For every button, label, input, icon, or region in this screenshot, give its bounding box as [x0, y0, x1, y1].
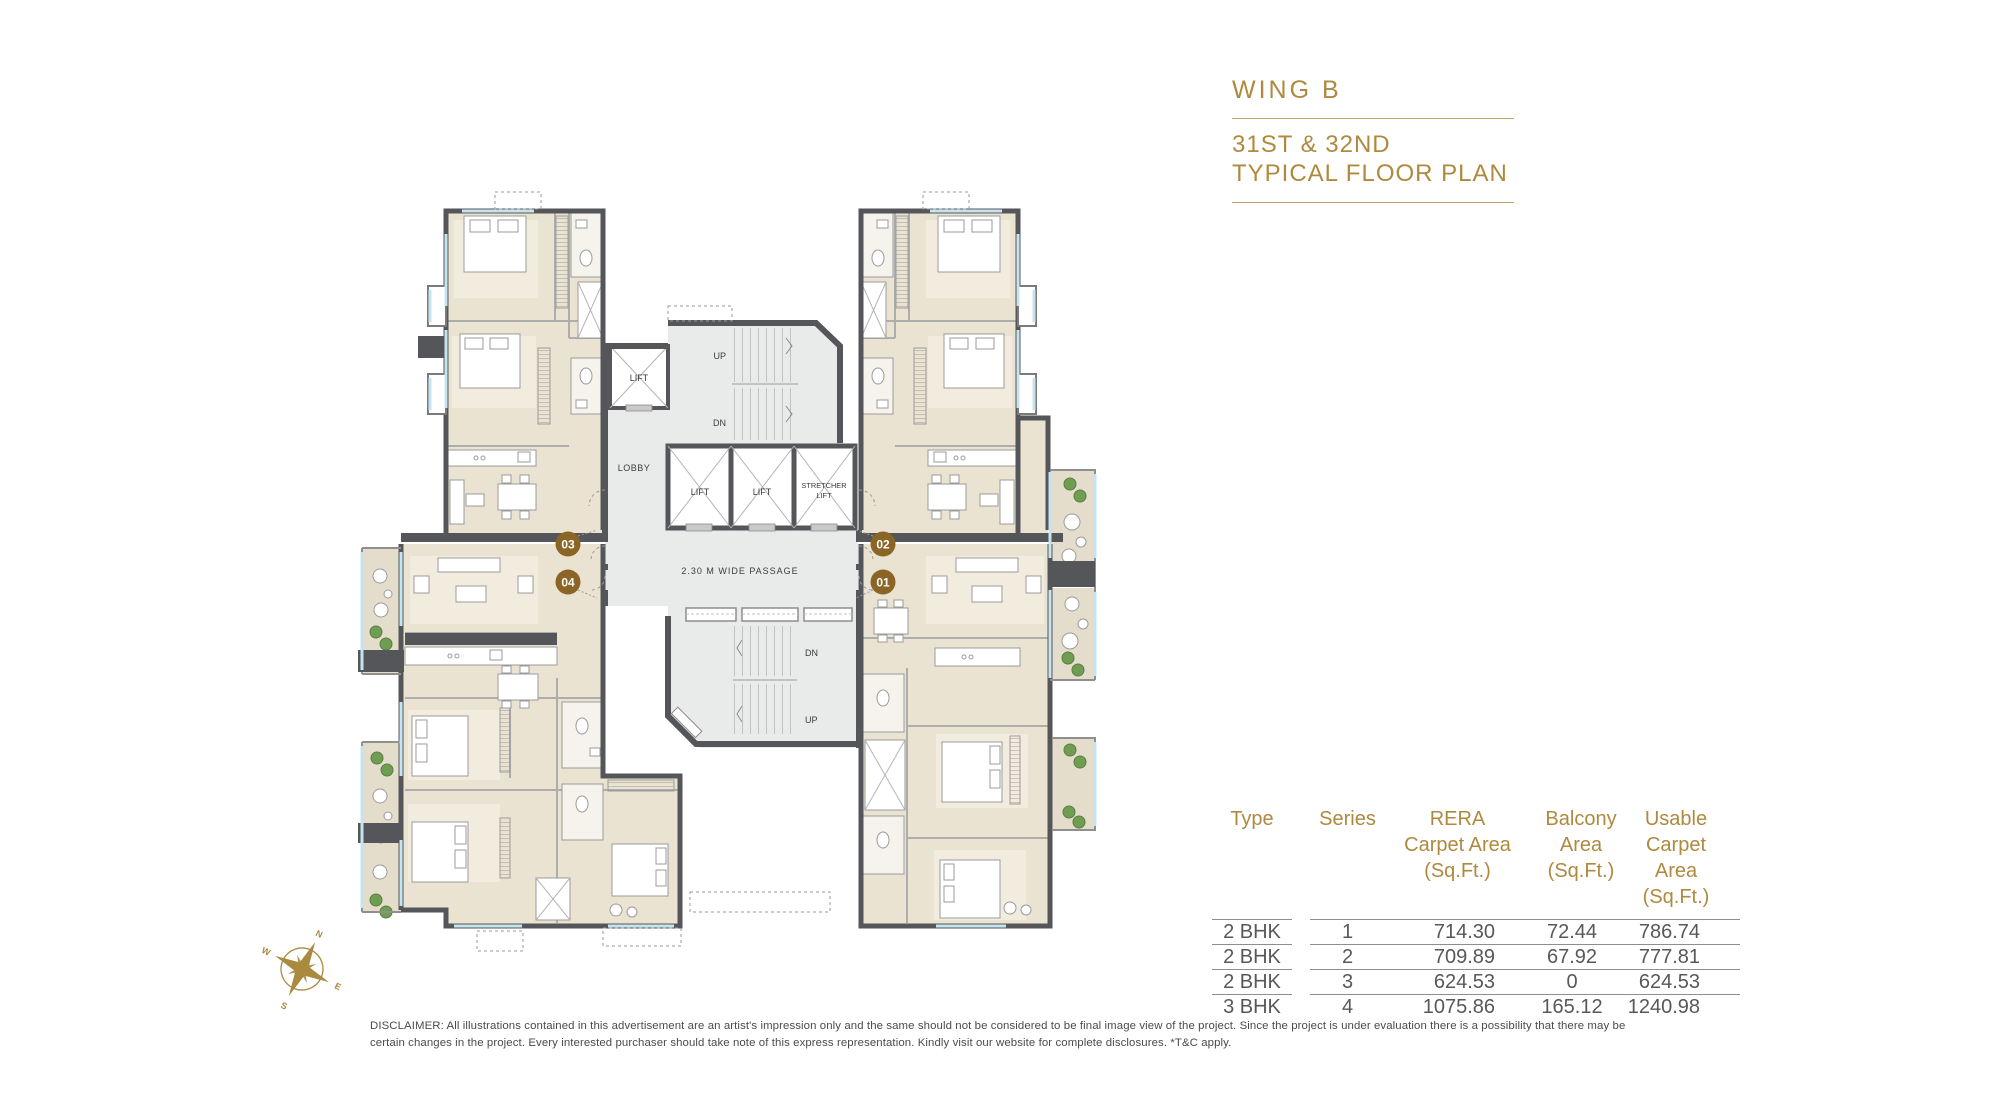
subtitle-line2: TYPICAL FLOOR PLAN	[1232, 159, 1522, 188]
header-series: Series	[1310, 806, 1385, 832]
table-header-row: Type Series RERA Carpet Area (Sq.Ft.) Ba…	[1212, 806, 1740, 919]
floor-plan: LIFT LOBBY UP DN LIFT LIFT STRETCHER LIF…	[350, 178, 1110, 970]
disclaimer-text: DISCLAIMER: All illustrations contained …	[370, 1018, 1654, 1052]
table-row: 3 BHK 4 1075.86 165.12 1240.98	[1212, 994, 1740, 1019]
unit-04-badge: 04	[561, 576, 575, 590]
floor-plan-svg: LIFT LOBBY UP DN LIFT LIFT STRETCHER LIF…	[350, 178, 1110, 970]
header-rera: RERA Carpet Area (Sq.Ft.)	[1385, 806, 1530, 910]
unit-03-badge: 03	[561, 538, 575, 552]
header-usable: Usable Carpet Area (Sq.Ft.)	[1632, 806, 1740, 910]
compass-w: W	[260, 945, 272, 958]
up-top-label: UP	[713, 351, 726, 361]
title-rule-bottom	[1232, 202, 1514, 203]
stretcher-lift-label-2: LIFT	[816, 491, 832, 500]
compass-n: N	[314, 928, 324, 940]
lift-2-label: LIFT	[753, 487, 772, 497]
dn-bottom-label: DN	[805, 648, 818, 658]
header-balcony: Balcony Area (Sq.Ft.)	[1530, 806, 1632, 910]
lift-small-label: LIFT	[630, 373, 649, 383]
table-row: 2 BHK 1 714.30 72.44 786.74	[1212, 919, 1740, 944]
passage-label: 2.30 M WIDE PASSAGE	[681, 566, 798, 576]
compass: N E S W	[250, 916, 354, 1020]
subtitle-line1: 31ST & 32ND	[1232, 130, 1522, 159]
unit-01-badge: 01	[876, 576, 890, 590]
compass-e: E	[333, 981, 343, 993]
page: { "title": { "wing": "WING B", "line1": …	[0, 0, 2000, 1100]
unit-02-badge: 02	[876, 538, 890, 552]
area-table: Type Series RERA Carpet Area (Sq.Ft.) Ba…	[1212, 806, 1740, 1019]
stretcher-lift-label-1: STRETCHER	[801, 481, 846, 490]
title-rule-top	[1232, 118, 1514, 119]
lobby-label: LOBBY	[618, 463, 651, 473]
compass-svg: N E S W	[250, 916, 354, 1020]
staircase-top	[732, 328, 798, 440]
table-row: 2 BHK 3 624.53 0 624.53	[1212, 969, 1740, 994]
page-title: WING B	[1232, 76, 1522, 105]
header-type: Type	[1212, 806, 1292, 832]
up-bottom-label: UP	[805, 715, 818, 725]
compass-s: S	[279, 1000, 289, 1012]
dn-top-label: DN	[713, 418, 726, 428]
lift-1-label: LIFT	[691, 487, 710, 497]
title-block: WING B 31ST & 32ND TYPICAL FLOOR PLAN	[1232, 76, 1522, 214]
table-row: 2 BHK 2 709.89 67.92 777.81	[1212, 944, 1740, 969]
